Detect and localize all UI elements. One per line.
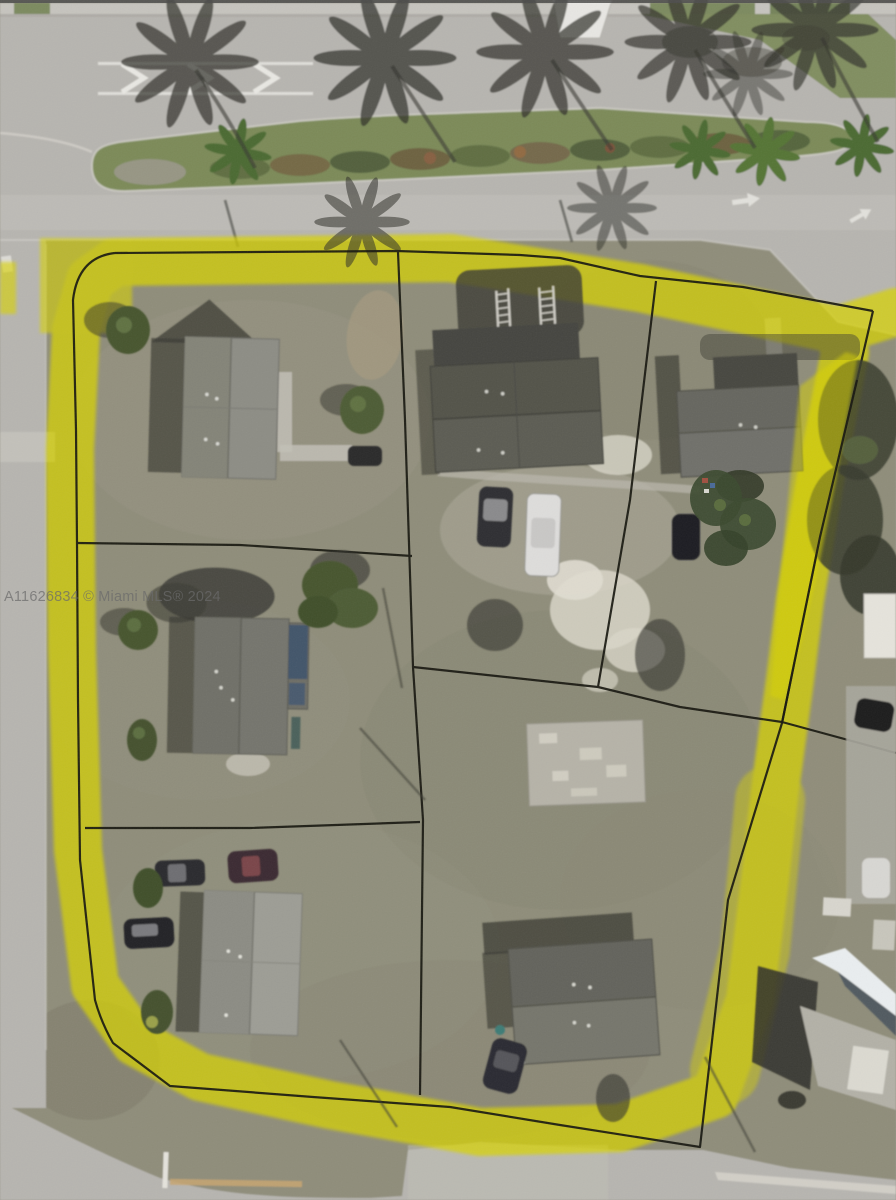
aerial-property-photo: A11626834 © Miami MLS® 2024 — [0, 0, 896, 1200]
mls-watermark: A11626834 © Miami MLS® 2024 — [4, 589, 221, 605]
